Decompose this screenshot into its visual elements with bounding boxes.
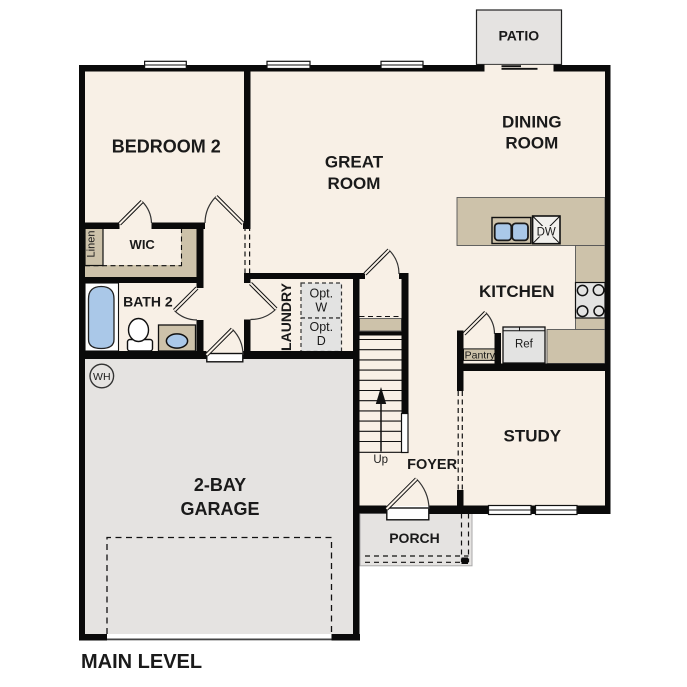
- svg-text:W: W: [315, 301, 327, 315]
- svg-text:ROOM: ROOM: [328, 174, 381, 193]
- svg-text:Opt.: Opt.: [309, 320, 333, 334]
- svg-text:STUDY: STUDY: [503, 426, 561, 445]
- svg-text:Opt.: Opt.: [309, 287, 333, 301]
- svg-text:BATH 2: BATH 2: [123, 294, 173, 310]
- svg-text:GARAGE: GARAGE: [180, 499, 259, 519]
- svg-text:MAIN LEVEL: MAIN LEVEL: [81, 651, 202, 673]
- svg-text:BEDROOM 2: BEDROOM 2: [112, 137, 221, 157]
- svg-text:Linen: Linen: [86, 231, 98, 258]
- svg-text:LAUNDRY: LAUNDRY: [278, 282, 294, 351]
- svg-text:KITCHEN: KITCHEN: [479, 282, 555, 301]
- svg-text:2-BAY: 2-BAY: [194, 475, 246, 495]
- svg-text:FOYER: FOYER: [407, 457, 457, 473]
- svg-text:D: D: [317, 334, 326, 348]
- svg-text:PATIO: PATIO: [498, 27, 539, 43]
- svg-text:WH: WH: [93, 371, 111, 383]
- svg-text:GREAT: GREAT: [325, 153, 384, 172]
- svg-text:ROOM: ROOM: [505, 133, 558, 152]
- svg-text:Ref: Ref: [515, 338, 534, 350]
- svg-text:DINING: DINING: [502, 113, 562, 132]
- svg-text:PORCH: PORCH: [389, 530, 440, 546]
- svg-text:WIC: WIC: [130, 237, 156, 252]
- svg-text:DW: DW: [537, 226, 556, 238]
- svg-text:Pantry: Pantry: [465, 350, 496, 362]
- svg-text:Up: Up: [373, 454, 388, 466]
